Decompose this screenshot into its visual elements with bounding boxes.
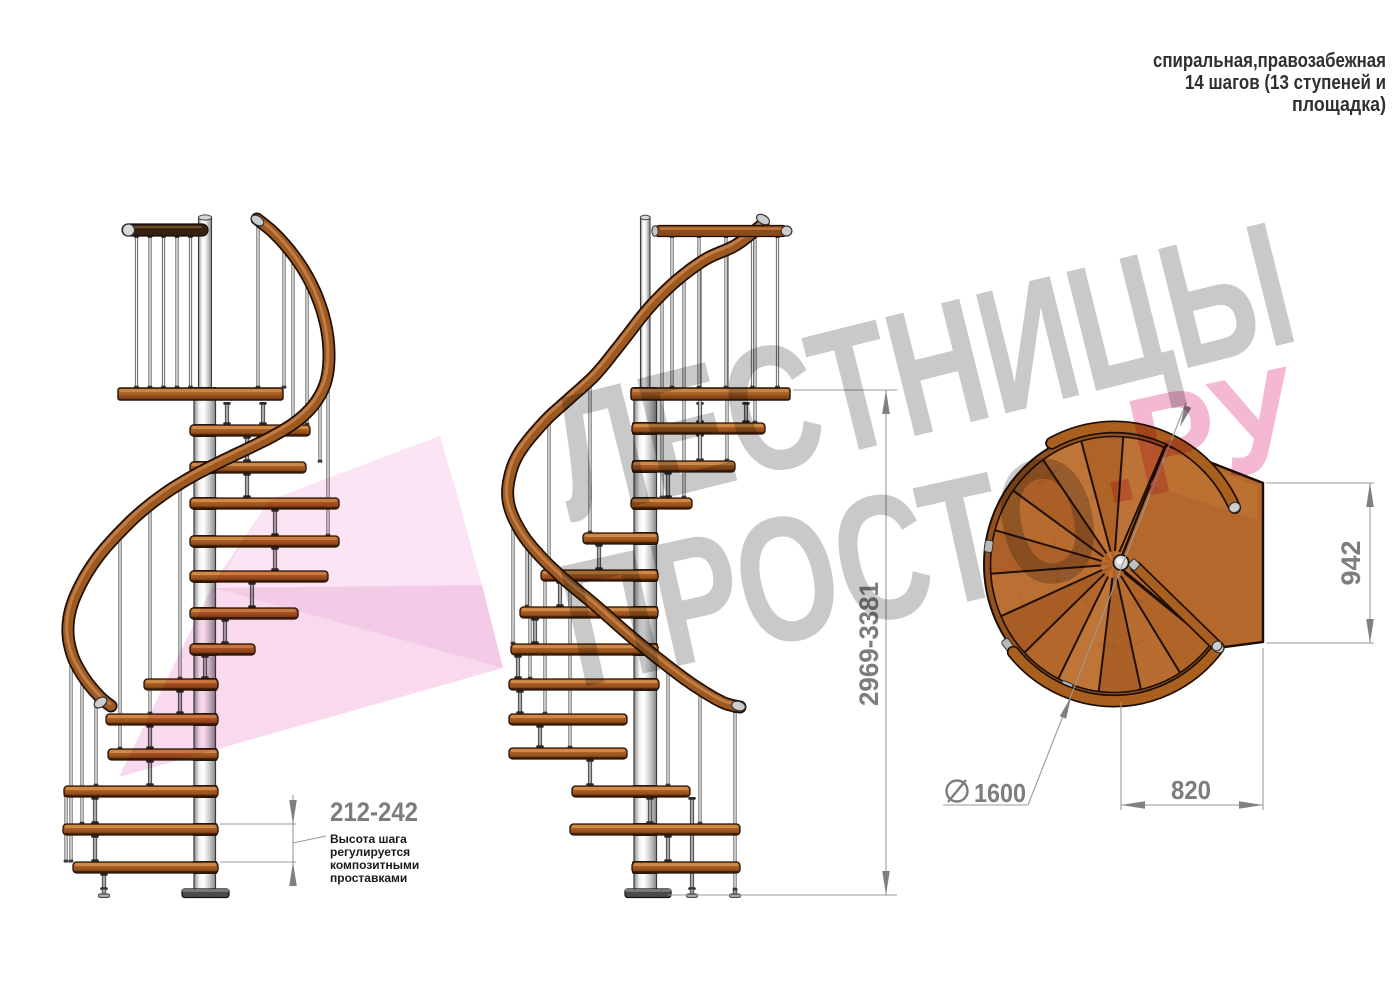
svg-text:14 шагов (13 ступеней и: 14 шагов (13 ступеней и (1185, 72, 1386, 94)
svg-text:площадка): площадка) (1292, 94, 1386, 116)
svg-text:проставками: проставками (330, 871, 407, 885)
svg-text:212-242: 212-242 (330, 797, 418, 827)
svg-text:спиральная,правозабежная: спиральная,правозабежная (1153, 50, 1386, 72)
svg-text:композитными: композитными (330, 858, 419, 872)
svg-text:820: 820 (1171, 775, 1211, 805)
svg-text:Высота шага: Высота шага (330, 832, 407, 846)
svg-text:1600: 1600 (974, 778, 1026, 808)
svg-text:942: 942 (1336, 540, 1366, 585)
svg-text:регулируется: регулируется (330, 845, 410, 859)
